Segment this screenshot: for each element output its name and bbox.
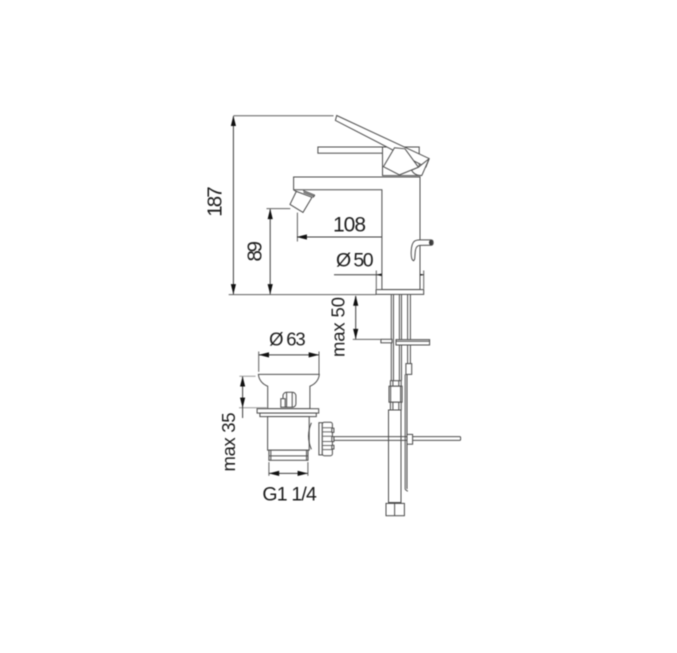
svg-text:G1 1/4: G1 1/4 [262,484,317,506]
svg-text:Ø 63: Ø 63 [269,328,306,349]
svg-text:89: 89 [244,241,267,262]
svg-text:Ø 50: Ø 50 [336,250,374,272]
svg-text:max 50: max 50 [328,297,349,357]
svg-text:108: 108 [333,213,366,236]
svg-text:187: 187 [204,186,227,217]
svg-text:max 35: max 35 [218,413,239,472]
